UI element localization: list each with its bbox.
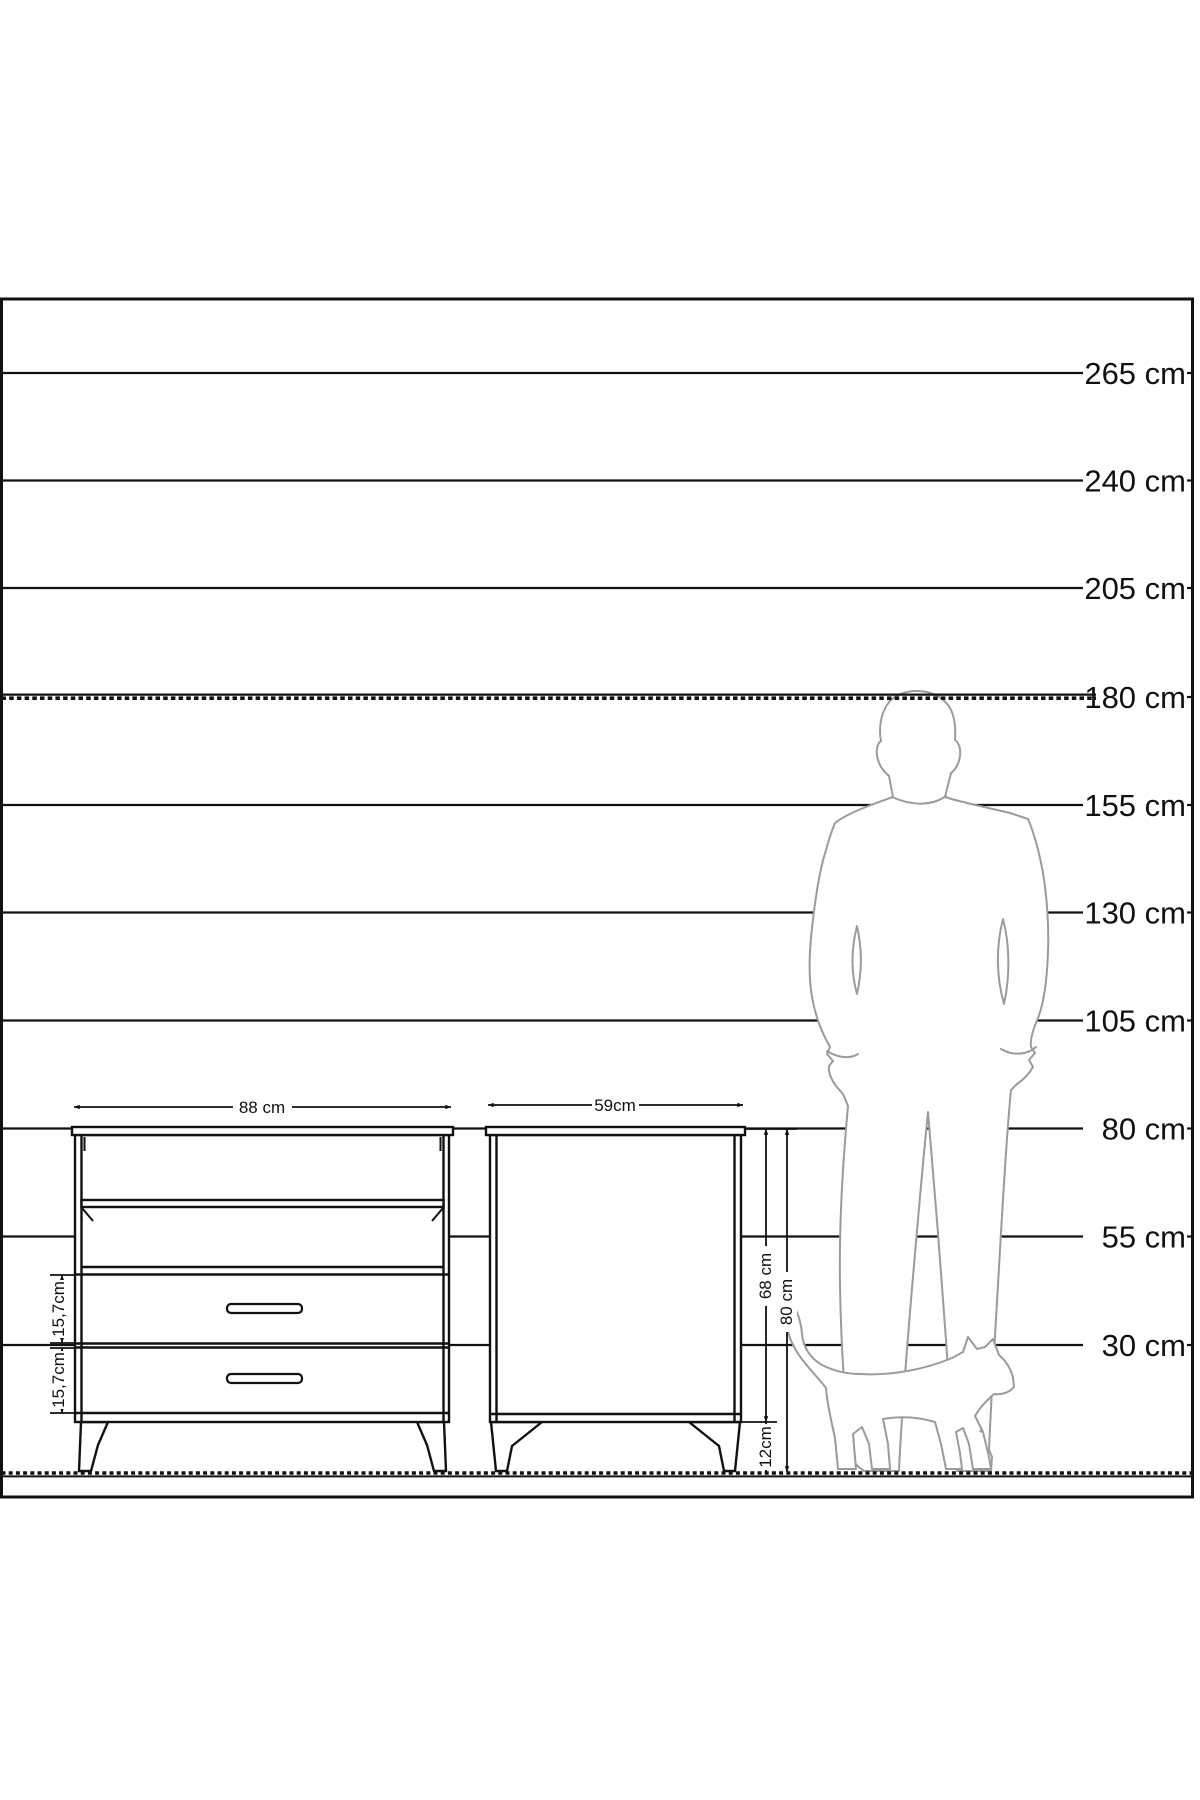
- nightstand-top-plate: [486, 1127, 745, 1135]
- furniture-dimension-diagram: 88 cm 59cm 15,7cm 15,7cm 68 cm 80 c: [0, 0, 1200, 1800]
- nightstand-body: [490, 1135, 741, 1422]
- dresser-drawer1-handle: [227, 1304, 302, 1313]
- nightstand-leg-height-label: 12cm: [756, 1426, 775, 1468]
- dresser-width-label: 88 cm: [239, 1098, 285, 1117]
- scale-label-240: 240 cm: [1084, 464, 1186, 499]
- drawer2-height-label: 15,7cm: [49, 1352, 68, 1408]
- dresser-shelf: [82, 1200, 444, 1207]
- nightstand-total-height-label: 80 cm: [777, 1279, 796, 1325]
- drawer1-height-label: 15,7cm: [49, 1281, 68, 1337]
- cat-fur-dot: [979, 1429, 982, 1432]
- scale-label-105: 105 cm: [1084, 1004, 1186, 1039]
- scale-label-180: 180 cm: [1084, 680, 1186, 715]
- scale-label-205: 205 cm: [1084, 571, 1186, 606]
- nightstand-width-label: 59cm: [594, 1096, 636, 1115]
- nightstand-body-height-label: 68 cm: [756, 1253, 775, 1299]
- scale-label-130: 130 cm: [1084, 896, 1186, 931]
- diagram-svg: 88 cm 59cm 15,7cm 15,7cm 68 cm 80 c: [0, 0, 1200, 1800]
- scale-label-80: 80 cm: [1102, 1112, 1186, 1147]
- nightstand-side-view: [486, 1127, 745, 1471]
- scale-label-55: 55 cm: [1102, 1220, 1186, 1255]
- dresser-front-view: [72, 1127, 453, 1471]
- dresser-top-plate: [72, 1127, 453, 1135]
- scale-label-155: 155 cm: [1084, 788, 1186, 823]
- dresser-drawer2-handle: [227, 1374, 302, 1383]
- scale-label-265: 265 cm: [1084, 356, 1186, 391]
- scale-label-30: 30 cm: [1102, 1328, 1186, 1363]
